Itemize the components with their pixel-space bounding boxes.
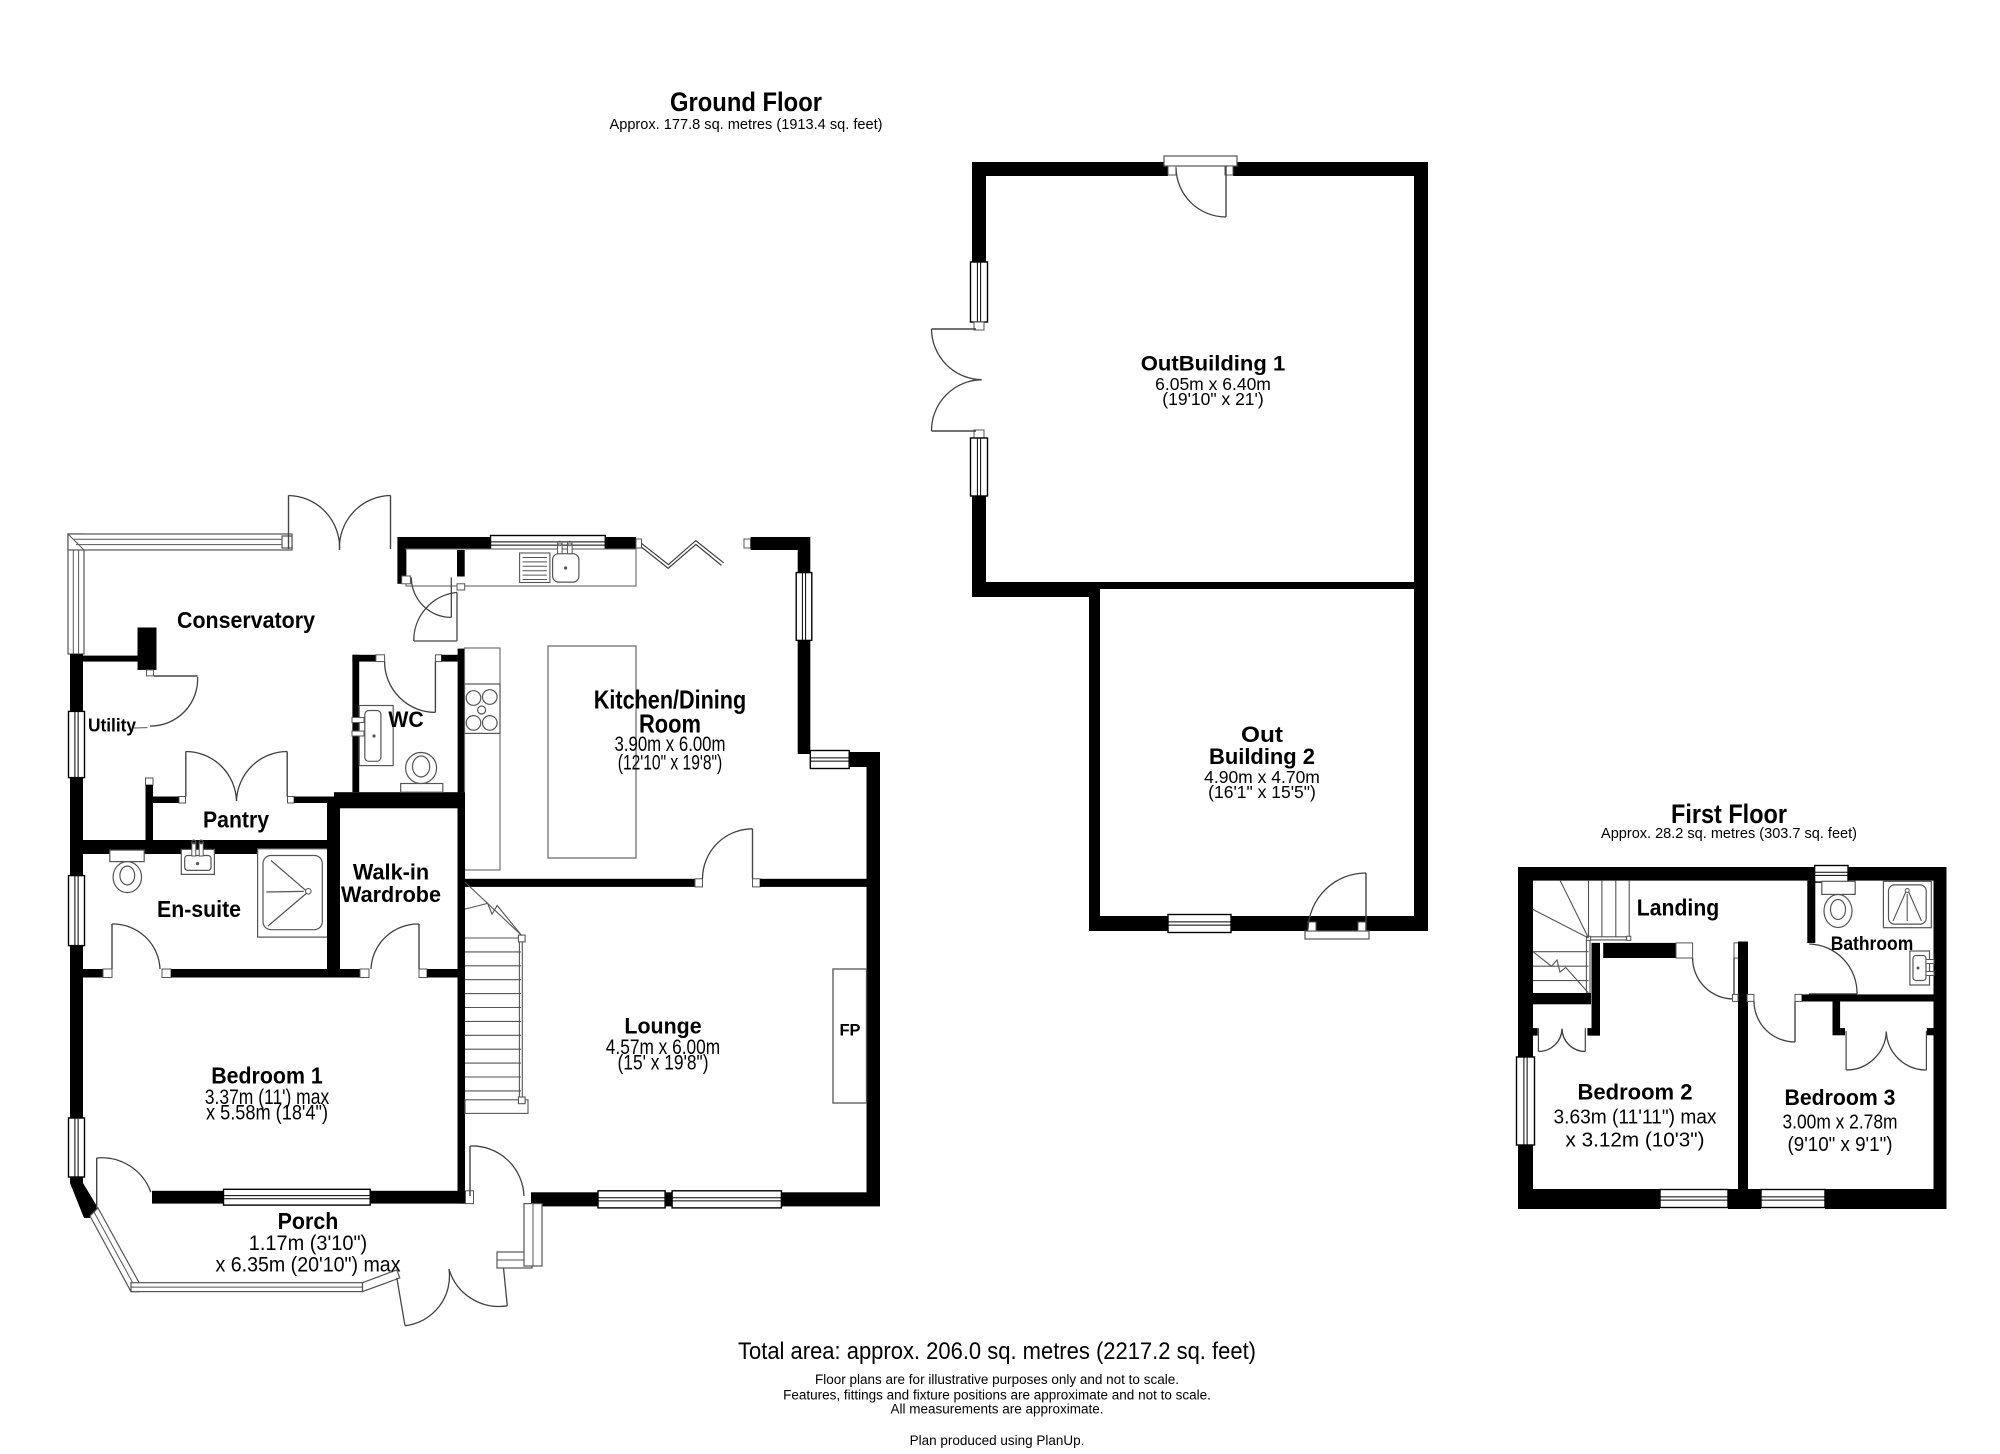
svg-text:Ground Floor: Ground Floor bbox=[670, 87, 822, 117]
svg-text:FP: FP bbox=[840, 1022, 861, 1040]
svg-text:Porch: Porch bbox=[278, 1208, 339, 1234]
svg-text:(15' x 19'8"): (15' x 19'8") bbox=[618, 1052, 709, 1075]
svg-text:(9'10" x 9'1"): (9'10" x 9'1") bbox=[1788, 1134, 1893, 1156]
svg-text:(16'1" x 15'5"): (16'1" x 15'5") bbox=[1208, 782, 1316, 802]
svg-text:Total area: approx. 206.0 sq.: Total area: approx. 206.0 sq. metres (22… bbox=[738, 1338, 1256, 1365]
svg-text:Bedroom 1: Bedroom 1 bbox=[211, 1063, 323, 1089]
svg-text:Plan produced using PlanUp.: Plan produced using PlanUp. bbox=[910, 1433, 1085, 1448]
svg-text:Features, fittings and fixture: Features, fittings and fixture positions… bbox=[783, 1388, 1211, 1403]
svg-text:Approx. 28.2 sq. metres (303.7: Approx. 28.2 sq. metres (303.7 sq. feet) bbox=[1601, 825, 1857, 842]
svg-text:x 3.12m (10'3"): x 3.12m (10'3") bbox=[1566, 1130, 1705, 1152]
svg-text:3.63m (11'11") max: 3.63m (11'11") max bbox=[1554, 1107, 1717, 1129]
svg-text:Wardrobe: Wardrobe bbox=[341, 882, 441, 907]
svg-text:Utility: Utility bbox=[88, 716, 136, 736]
svg-text:Bathroom: Bathroom bbox=[1831, 934, 1914, 955]
svg-text:Bedroom 3: Bedroom 3 bbox=[1785, 1085, 1896, 1110]
svg-text:(12'10" x 19'8"): (12'10" x 19'8") bbox=[618, 751, 723, 774]
svg-text:Walk-in: Walk-in bbox=[353, 860, 429, 885]
svg-text:Building 2: Building 2 bbox=[1209, 744, 1315, 769]
svg-text:1.17m (3'10"): 1.17m (3'10") bbox=[249, 1232, 367, 1255]
svg-text:Conservatory: Conservatory bbox=[177, 607, 315, 633]
svg-text:Pantry: Pantry bbox=[203, 807, 269, 833]
svg-text:WC: WC bbox=[388, 707, 423, 732]
svg-text:Lounge: Lounge bbox=[624, 1014, 701, 1039]
svg-text:Landing: Landing bbox=[1637, 895, 1720, 921]
svg-text:OutBuilding 1: OutBuilding 1 bbox=[1141, 352, 1286, 376]
svg-text:All measurements are approxima: All measurements are approximate. bbox=[890, 1402, 1103, 1417]
svg-text:(19'10" x 21'): (19'10" x 21') bbox=[1162, 389, 1263, 409]
svg-text:En-suite: En-suite bbox=[157, 896, 241, 922]
svg-text:Bedroom 2: Bedroom 2 bbox=[1578, 1080, 1693, 1105]
svg-text:x 6.35m (20'10") max: x 6.35m (20'10") max bbox=[216, 1254, 401, 1277]
svg-text:3.00m x 2.78m: 3.00m x 2.78m bbox=[1783, 1112, 1898, 1134]
svg-text:x 5.58m (18'4"): x 5.58m (18'4") bbox=[206, 1102, 328, 1125]
svg-text:Approx. 177.8 sq. metres (1913: Approx. 177.8 sq. metres (1913.4 sq. fee… bbox=[610, 116, 883, 133]
svg-text:Floor plans are for illustrati: Floor plans are for illustrative purpose… bbox=[815, 1372, 1179, 1387]
